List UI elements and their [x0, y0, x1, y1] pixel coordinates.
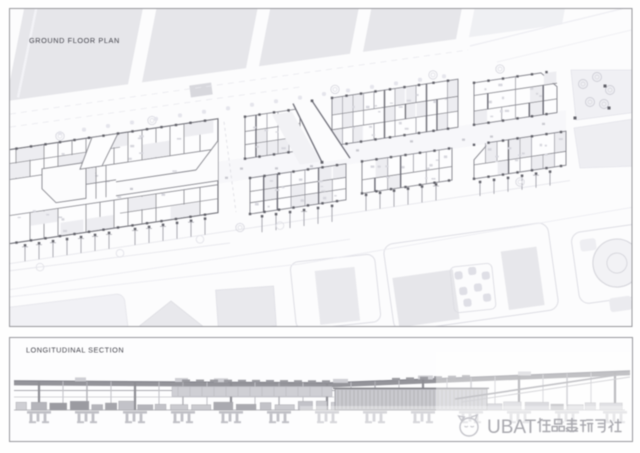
svg-text:GROUND FLOOR PLAN: GROUND FLOOR PLAN	[29, 36, 120, 45]
svg-text:UBAT: UBAT	[487, 417, 537, 438]
svg-text:LONGITUDINAL SECTION: LONGITUDINAL SECTION	[26, 346, 124, 355]
